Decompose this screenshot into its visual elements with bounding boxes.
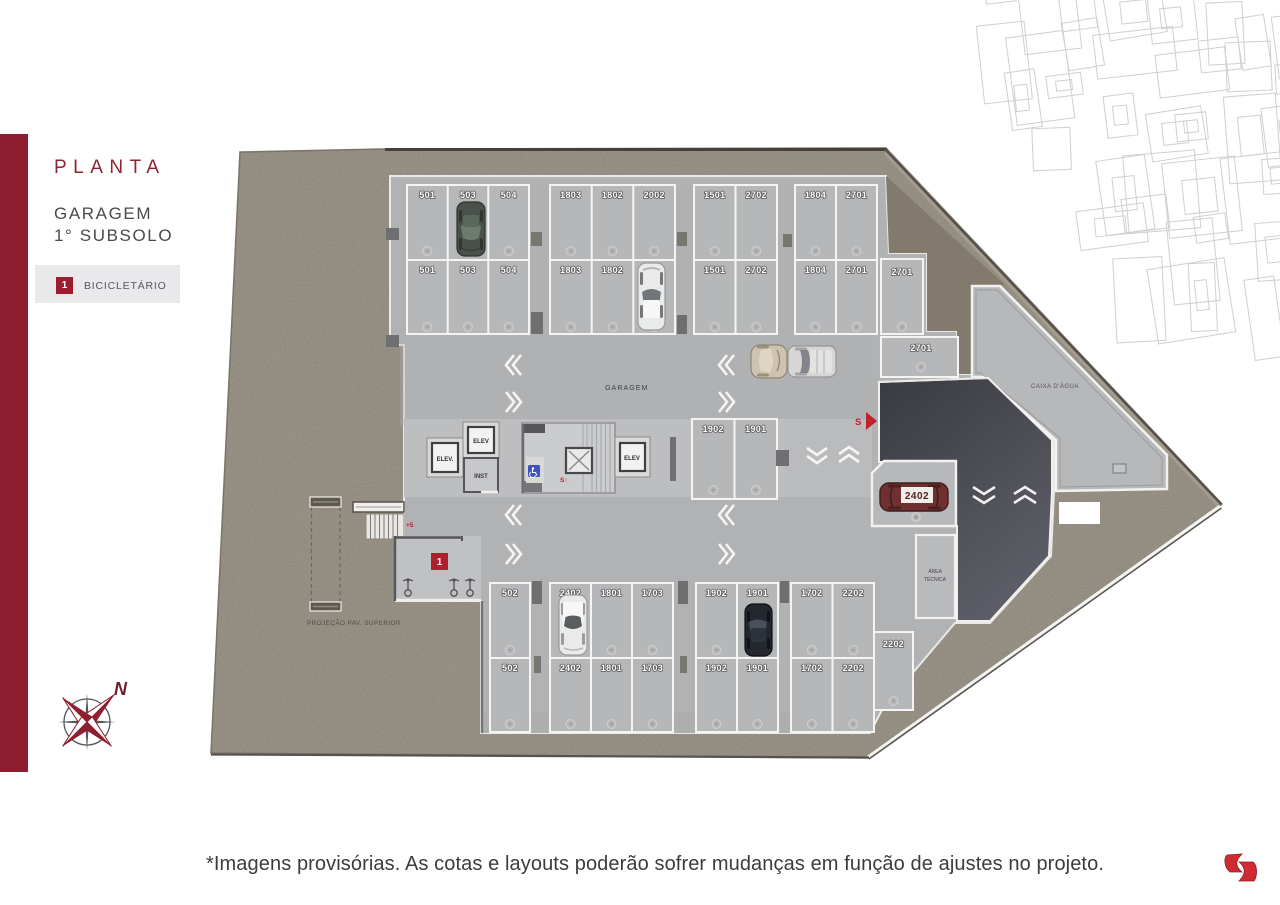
- svg-text:502: 502: [502, 588, 518, 598]
- svg-text:504: 504: [501, 265, 517, 275]
- svg-text:503: 503: [460, 265, 476, 275]
- svg-text:504: 504: [501, 190, 517, 200]
- svg-text:ELEV: ELEV: [624, 456, 640, 462]
- svg-text:CAIXA D'ÁGUA: CAIXA D'ÁGUA: [1031, 383, 1079, 390]
- svg-text:2701: 2701: [846, 190, 867, 200]
- svg-text:GARAGEM: GARAGEM: [605, 385, 648, 392]
- svg-text:INST: INST: [474, 474, 488, 480]
- svg-text:2702: 2702: [746, 190, 767, 200]
- svg-text:2702: 2702: [746, 265, 767, 275]
- svg-text:1804: 1804: [805, 265, 826, 275]
- svg-text:2701: 2701: [910, 343, 931, 353]
- svg-text:502: 502: [502, 663, 518, 673]
- svg-text:2701: 2701: [891, 267, 912, 277]
- svg-text:2402: 2402: [905, 491, 929, 502]
- svg-text:503: 503: [460, 190, 476, 200]
- svg-text:1801: 1801: [601, 663, 622, 673]
- svg-text:ELEV: ELEV: [473, 439, 489, 445]
- svg-text:2701: 2701: [846, 265, 867, 275]
- svg-text:2202: 2202: [883, 639, 904, 649]
- svg-text:ÁREA: ÁREA: [928, 568, 942, 575]
- svg-text:N: N: [114, 679, 128, 699]
- svg-text:1: 1: [437, 557, 443, 568]
- svg-text:PROJEÇÃO PAV. SUPERIOR: PROJEÇÃO PAV. SUPERIOR: [307, 618, 401, 627]
- svg-text:1802: 1802: [602, 265, 623, 275]
- svg-text:1703: 1703: [642, 588, 663, 598]
- svg-text:S↑: S↑: [560, 477, 568, 484]
- svg-text:TÉCNICA: TÉCNICA: [924, 576, 947, 583]
- svg-text:1501: 1501: [704, 265, 725, 275]
- svg-text:1902: 1902: [706, 588, 727, 598]
- svg-text:1902: 1902: [706, 663, 727, 673]
- svg-text:501: 501: [419, 265, 435, 275]
- svg-text:ELEV.: ELEV.: [437, 457, 454, 463]
- svg-text:1803: 1803: [560, 190, 581, 200]
- svg-text:2002: 2002: [644, 190, 665, 200]
- svg-text:2202: 2202: [843, 663, 864, 673]
- svg-text:1804: 1804: [805, 190, 826, 200]
- svg-text:1702: 1702: [801, 663, 822, 673]
- svg-text:1902: 1902: [703, 424, 724, 434]
- svg-text:1901: 1901: [747, 588, 768, 598]
- svg-text:2202: 2202: [843, 588, 864, 598]
- svg-text:1501: 1501: [704, 190, 725, 200]
- svg-text:1901: 1901: [747, 663, 768, 673]
- svg-text:1802: 1802: [602, 190, 623, 200]
- svg-text:501: 501: [419, 190, 435, 200]
- svg-text:+5: +5: [406, 522, 414, 529]
- svg-text:1901: 1901: [745, 424, 766, 434]
- svg-text:1703: 1703: [642, 663, 663, 673]
- svg-text:1801: 1801: [601, 588, 622, 598]
- svg-text:1702: 1702: [801, 588, 822, 598]
- svg-text:2402: 2402: [560, 663, 581, 673]
- svg-text:1803: 1803: [560, 265, 581, 275]
- svg-text:S: S: [855, 417, 861, 428]
